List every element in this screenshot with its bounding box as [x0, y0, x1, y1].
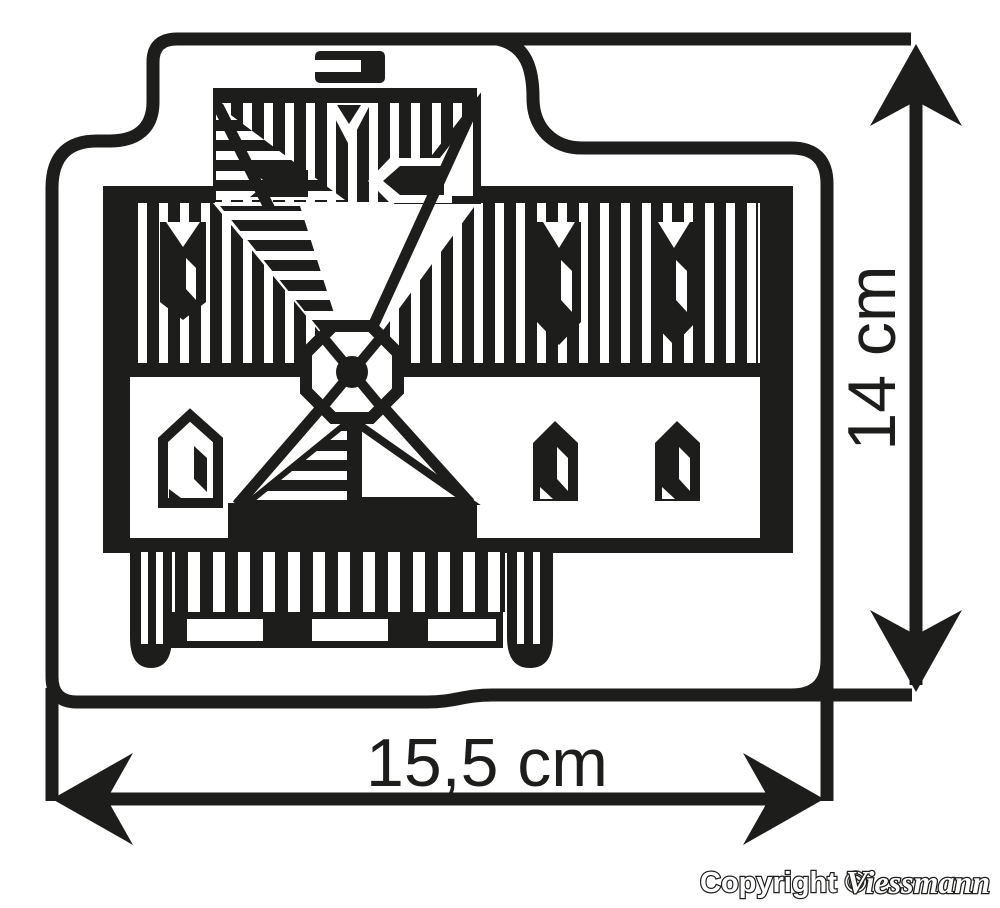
diagram-canvas: 14 cm 15,5 cm Copyright © Viessmann — [0, 0, 1000, 908]
dormer — [160, 222, 206, 320]
height-dimension-label: 14 cm — [834, 265, 910, 450]
windmill-hub — [306, 326, 398, 418]
width-dimension-label: 15,5 cm — [366, 725, 608, 801]
brand-logo-text: Viessmann — [846, 864, 990, 900]
dormer-filled — [655, 421, 700, 501]
dormer-outline — [163, 415, 218, 503]
dock-railing — [130, 552, 553, 668]
copyright-text: Copyright © — [700, 867, 866, 899]
left-wall — [103, 186, 130, 552]
footprint-diagram: 14 cm 15,5 cm Copyright © Viessmann — [0, 0, 1000, 908]
dormer-filled — [533, 421, 578, 501]
dormer — [537, 222, 581, 345]
dimension-width: 15,5 cm — [52, 655, 827, 845]
platform — [228, 503, 477, 543]
dock-post — [130, 552, 172, 668]
building-plan — [103, 88, 793, 668]
dormer — [652, 222, 696, 345]
dock-post — [507, 552, 553, 668]
eave-bar — [103, 363, 760, 377]
copyright: Copyright © Viessmann — [700, 864, 990, 900]
right-wall — [760, 186, 793, 552]
right-wing-ridge-bar — [475, 186, 793, 203]
